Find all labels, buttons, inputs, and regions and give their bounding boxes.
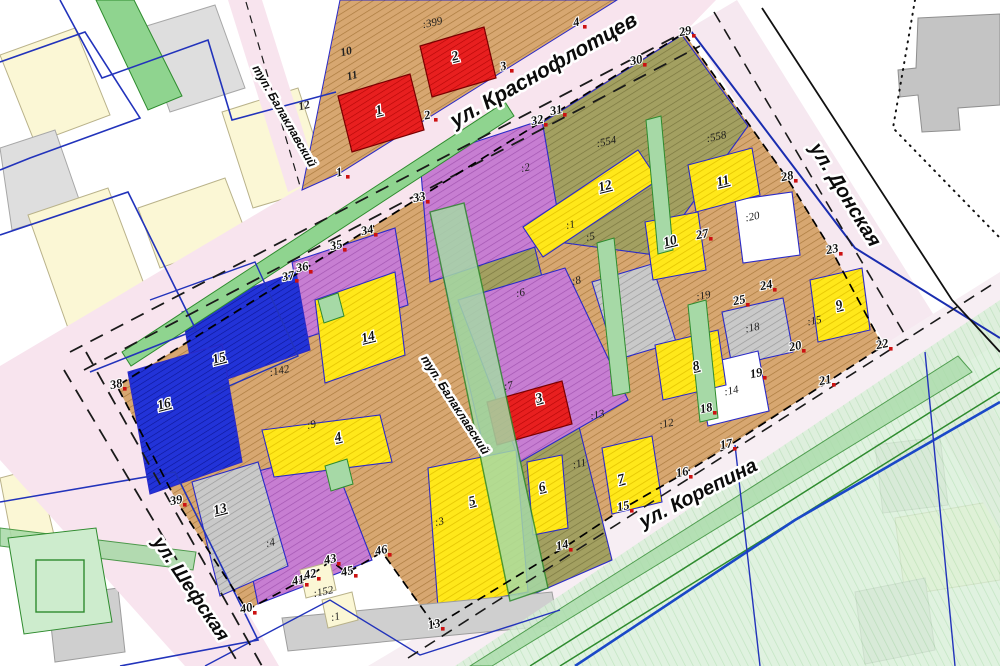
boundary-vertex-dot xyxy=(510,69,514,73)
boundary-point-33: 33 xyxy=(411,189,427,206)
boundary-point-35: 35 xyxy=(328,237,344,254)
plot-7-yellow xyxy=(602,436,662,514)
house-number-12: 12 xyxy=(297,99,311,113)
boundary-point-22: 22 xyxy=(874,336,890,353)
boundary-point-43: 43 xyxy=(322,551,338,568)
boundary-point-25: 25 xyxy=(731,292,747,309)
boundary-vertex-dot xyxy=(346,175,350,179)
boundary-vertex-dot xyxy=(583,25,587,29)
factory-building xyxy=(898,14,1000,132)
boundary-point-31: 31 xyxy=(548,102,564,119)
boundary-point-42: 42 xyxy=(302,566,318,583)
boundary-point-45: 45 xyxy=(339,563,355,580)
boundary-point-23: 23 xyxy=(824,241,840,258)
park-blob-sw xyxy=(8,528,112,634)
city-plan-map: ул. Краснофлотцевул. Донскаяул. Шефскаяу… xyxy=(0,0,1000,666)
boundary-point-24: 24 xyxy=(758,277,774,294)
boundary-vertex-dot xyxy=(434,118,438,122)
boundary-point-32: 32 xyxy=(529,112,545,129)
boundary-point-21: 21 xyxy=(817,372,833,389)
parcel-20-white xyxy=(735,192,800,263)
boundary-point-34: 34 xyxy=(359,222,375,239)
map-svg: ул. Краснофлотцевул. Донскаяул. Шефскаяу… xyxy=(0,0,1000,666)
